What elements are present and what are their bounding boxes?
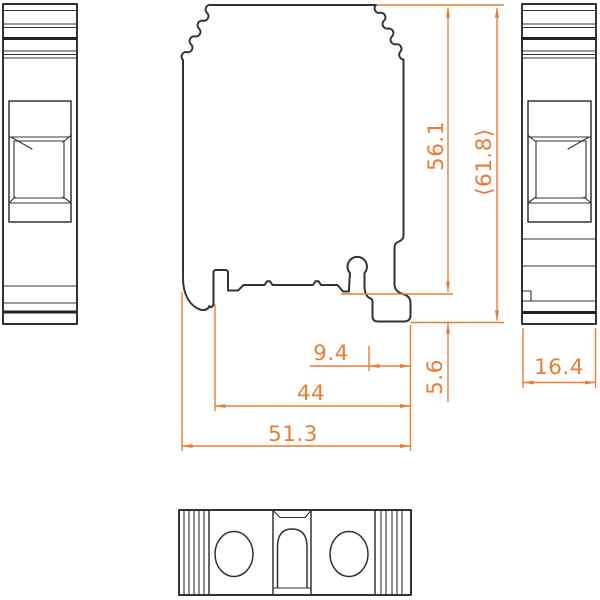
left-view-top-ridges bbox=[3, 11, 77, 59]
bottom-view-outline bbox=[179, 510, 411, 595]
right-view-marker-window bbox=[528, 101, 591, 222]
dim-foot-offset: 9.4 bbox=[313, 341, 349, 366]
bottom-view-left-ribs bbox=[184, 510, 209, 595]
left-view-bottom-ridges bbox=[3, 286, 77, 312]
center-tab-arch bbox=[278, 529, 308, 588]
right-screw-hole bbox=[330, 532, 368, 577]
left-screw-hole bbox=[215, 532, 253, 577]
dimension-arrowheads bbox=[182, 7, 596, 448]
dim-upper-height: 56.1 bbox=[424, 121, 449, 171]
front-view-body-outline bbox=[183, 60, 411, 322]
bottom-view bbox=[179, 510, 411, 595]
bottom-view-center-tab bbox=[273, 510, 311, 595]
right-view-outline bbox=[522, 4, 596, 324]
right-side-view bbox=[522, 4, 596, 324]
dim-mounting-span: 44 bbox=[297, 381, 325, 406]
bottom-view-right-ribs bbox=[375, 510, 402, 595]
right-view-top-ridges bbox=[522, 11, 596, 59]
dim-block-width: 16.4 bbox=[534, 355, 584, 380]
dimension-annotations: 56.1 ⟨61.8⟩ 5.6 9.4 44 51.3 16.4 bbox=[182, 5, 596, 451]
left-side-view bbox=[3, 4, 77, 324]
dim-base-width: 51.3 bbox=[268, 422, 318, 447]
left-view-marker-window bbox=[9, 101, 71, 222]
right-view-bottom-ridges bbox=[522, 239, 596, 313]
right-view-rail-notch bbox=[522, 291, 531, 301]
dim-total-height: ⟨61.8⟩ bbox=[472, 128, 497, 196]
front-view-serrated-top bbox=[182, 5, 404, 60]
terminal-block-drawing: 56.1 ⟨61.8⟩ 5.6 9.4 44 51.3 16.4 bbox=[0, 0, 600, 600]
dim-foot-depth: 5.6 bbox=[423, 359, 448, 395]
technical-drawing-canvas: 56.1 ⟨61.8⟩ 5.6 9.4 44 51.3 16.4 bbox=[0, 0, 600, 600]
front-profile-view bbox=[182, 5, 411, 322]
